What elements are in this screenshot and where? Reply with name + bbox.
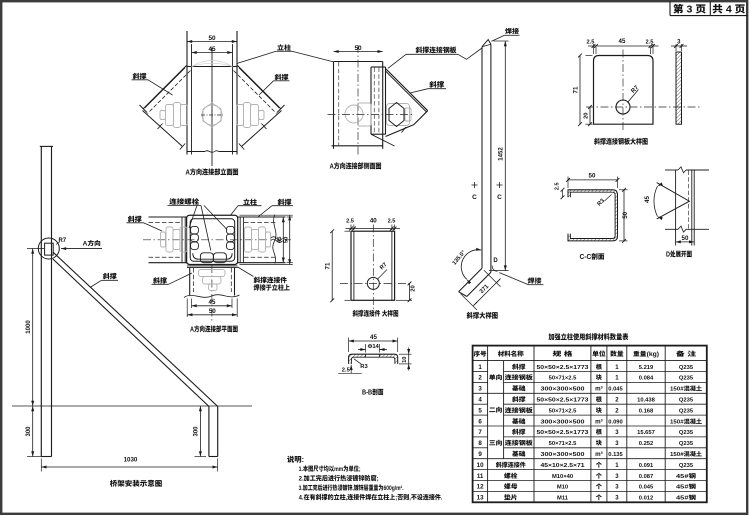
svg-text:50×71×2.5: 50×71×2.5: [549, 373, 578, 382]
svg-text:0.087: 0.087: [639, 471, 654, 480]
svg-text:0.045: 0.045: [639, 482, 654, 491]
svg-text:块: 块: [596, 438, 602, 447]
svg-text:斜撑连接件: 斜撑连接件: [496, 460, 527, 469]
svg-text:150#混凝土: 150#混凝土: [670, 416, 702, 425]
svg-text:斜撑大样图: 斜撑大样图: [467, 311, 499, 321]
svg-text:50: 50: [208, 33, 216, 42]
svg-text:6: 6: [478, 416, 482, 425]
svg-text:Q235: Q235: [679, 438, 694, 447]
svg-text:Q235: Q235: [679, 362, 694, 371]
svg-text:m³: m³: [595, 384, 603, 393]
svg-text:50×50×2.5×1773: 50×50×2.5×1773: [537, 363, 589, 371]
svg-text:9: 9: [478, 449, 482, 458]
svg-text:4.在有斜撑的立柱,连接件焊在立柱上;否则,不设连接件.: 4.在有斜撑的立柱,连接件焊在立柱上;否则,不设连接件.: [299, 491, 443, 501]
svg-text:C: C: [472, 191, 477, 201]
svg-text:单向: 单向: [489, 373, 503, 382]
svg-text:2.5: 2.5: [342, 364, 351, 373]
svg-text:D处展开图: D处展开图: [666, 249, 692, 259]
svg-text:71: 71: [570, 86, 579, 93]
svg-text:根: 根: [596, 362, 603, 371]
svg-text:10.438: 10.438: [637, 395, 656, 404]
svg-text:150#混凝土: 150#混凝土: [670, 449, 702, 458]
svg-text:10: 10: [477, 460, 484, 469]
svg-text:300×300×500: 300×300×500: [541, 416, 585, 425]
svg-text:40: 40: [370, 216, 377, 225]
svg-text:材料名称: 材料名称: [498, 349, 525, 358]
svg-text:0.091: 0.091: [639, 460, 654, 469]
svg-text:50: 50: [682, 233, 689, 242]
svg-text:重量(kg): 重量(kg): [633, 349, 659, 358]
svg-text:45#钢: 45#钢: [676, 493, 696, 502]
svg-text:斜撑连接钢板大样图: 斜撑连接钢板大样图: [594, 137, 648, 147]
svg-text:R7: R7: [58, 235, 66, 244]
svg-text:45: 45: [209, 297, 216, 306]
svg-text:A方向连接部侧面图: A方向连接部侧面图: [330, 161, 382, 171]
svg-text:13: 13: [477, 493, 484, 502]
svg-text:45#钢: 45#钢: [676, 482, 696, 491]
svg-text:螺母: 螺母: [504, 482, 518, 491]
svg-text:垫片: 垫片: [504, 493, 518, 502]
svg-text:C-C剖面: C-C剖面: [580, 252, 605, 262]
svg-text:加强立柱使用斜撑材料数量表: 加强立柱使用斜撑材料数量表: [548, 331, 628, 342]
svg-text:二向: 二向: [489, 405, 503, 414]
svg-text:螺栓: 螺栓: [504, 471, 518, 480]
svg-text:斜撑: 斜撑: [128, 213, 142, 223]
svg-text:斜撑: 斜撑: [512, 395, 526, 404]
svg-text:斜撑连接钢板: 斜撑连接钢板: [416, 45, 457, 55]
svg-text:焊接于立柱上: 焊接于立柱上: [254, 282, 291, 292]
svg-text:71: 71: [323, 262, 332, 269]
svg-text:0.135: 0.135: [608, 449, 623, 458]
svg-text:1452: 1452: [495, 147, 504, 161]
svg-text:3: 3: [478, 384, 482, 393]
svg-text:300: 300: [191, 426, 200, 437]
svg-text:D: D: [493, 255, 498, 264]
svg-text:2.5: 2.5: [553, 182, 561, 190]
svg-text:C: C: [497, 191, 502, 201]
svg-text:m³: m³: [595, 449, 603, 458]
svg-text:立柱: 立柱: [277, 42, 291, 52]
svg-text:A方向连接部立面图: A方向连接部立面图: [186, 168, 239, 178]
svg-text:300×300×500: 300×300×500: [541, 449, 585, 458]
svg-text:根: 根: [596, 395, 603, 404]
svg-text:基础: 基础: [512, 416, 526, 425]
svg-text:Q235: Q235: [679, 405, 694, 414]
svg-text:斜撑连接件 大样图: 斜撑连接件 大样图: [353, 309, 399, 319]
svg-text:2.5: 2.5: [388, 217, 396, 225]
svg-text:1: 1: [478, 362, 482, 371]
svg-text:斜撑: 斜撑: [512, 427, 526, 436]
svg-text:斜撑: 斜撑: [103, 271, 117, 281]
svg-text:规 格: 规 格: [553, 349, 574, 358]
svg-text:45×10×2.5×71: 45×10×2.5×71: [541, 460, 586, 469]
svg-text:基础: 基础: [512, 384, 526, 393]
svg-text:5: 5: [478, 405, 482, 414]
svg-text:块: 块: [596, 373, 602, 382]
svg-text:连接钢板: 连接钢板: [505, 373, 534, 382]
svg-text:A方向连接部平面图: A方向连接部平面图: [190, 324, 238, 334]
svg-text:块: 块: [596, 405, 602, 414]
svg-text:第 3 页: 第 3 页: [673, 1, 706, 16]
svg-text:50: 50: [620, 211, 629, 218]
svg-text:10: 10: [399, 356, 408, 362]
svg-text:20: 20: [407, 285, 416, 291]
svg-text:0.252: 0.252: [639, 438, 654, 447]
svg-text:45: 45: [208, 44, 216, 53]
svg-text:12: 12: [477, 482, 484, 491]
svg-text:个: 个: [596, 493, 603, 502]
svg-text:Φ14: Φ14: [368, 341, 380, 350]
svg-text:Q235: Q235: [679, 395, 694, 404]
svg-text:焊接: 焊接: [505, 26, 519, 36]
svg-text:50: 50: [589, 171, 596, 180]
svg-text:1000: 1000: [23, 320, 32, 334]
svg-text:20: 20: [581, 112, 590, 118]
svg-text:斜撑: 斜撑: [275, 71, 289, 81]
svg-text:备 注: 备 注: [676, 349, 697, 358]
svg-text:0.045: 0.045: [608, 384, 623, 393]
svg-text:桥架安装示意图: 桥架安装示意图: [110, 479, 163, 489]
svg-text:斜撑: 斜撑: [133, 70, 147, 80]
svg-text:45: 45: [370, 332, 377, 341]
svg-text:50: 50: [354, 43, 362, 52]
svg-text:5.219: 5.219: [639, 362, 654, 371]
svg-text:斜撑: 斜撑: [153, 275, 167, 285]
svg-text:三向: 三向: [489, 438, 503, 447]
svg-text:45: 45: [642, 196, 651, 203]
svg-text:R3: R3: [360, 361, 368, 370]
svg-text:连接螺栓: 连接螺栓: [169, 196, 199, 206]
svg-text:根: 根: [596, 427, 603, 436]
svg-text:0.168: 0.168: [639, 405, 654, 414]
svg-text:个: 个: [596, 482, 603, 491]
svg-text:单位: 单位: [592, 349, 606, 358]
svg-text:Q235: Q235: [679, 427, 694, 436]
svg-text:M10: M10: [557, 482, 568, 491]
svg-text:45#钢: 45#钢: [676, 471, 696, 480]
svg-text:0.084: 0.084: [639, 373, 654, 382]
svg-text:数量: 数量: [610, 349, 624, 358]
svg-text:序号: 序号: [474, 349, 487, 358]
svg-text:7: 7: [478, 427, 482, 436]
svg-text:45: 45: [619, 36, 626, 45]
svg-text:Q235: Q235: [679, 373, 694, 382]
svg-text:个: 个: [596, 460, 603, 469]
svg-text:2.5: 2.5: [646, 36, 654, 45]
svg-text:50×71×2.5: 50×71×2.5: [549, 405, 578, 414]
svg-text:Q235: Q235: [679, 460, 694, 469]
svg-text:0.090: 0.090: [608, 416, 623, 425]
svg-text:50×50×2.5×1773: 50×50×2.5×1773: [537, 396, 589, 404]
svg-text:连接钢板: 连接钢板: [505, 438, 534, 447]
svg-text:2.加工完后进行热浸镀锌防腐;: 2.加工完后进行热浸镀锌防腐;: [299, 472, 379, 482]
svg-text:M11: M11: [557, 493, 569, 502]
svg-text:焊接: 焊接: [528, 275, 542, 285]
svg-text:1030: 1030: [124, 455, 138, 464]
svg-text:A方向: A方向: [83, 239, 101, 248]
svg-text:300: 300: [23, 426, 32, 437]
svg-text:300×300×500: 300×300×500: [541, 384, 585, 393]
svg-text:4: 4: [478, 395, 482, 404]
svg-text:50×50×2.5×1773: 50×50×2.5×1773: [537, 428, 589, 436]
svg-text:2: 2: [478, 373, 482, 382]
svg-text:M10×40: M10×40: [552, 471, 573, 480]
svg-text:基础: 基础: [512, 449, 526, 458]
svg-text:15.657: 15.657: [637, 427, 655, 436]
svg-text:1.本图尺寸均以mm为单位;: 1.本图尺寸均以mm为单位;: [299, 463, 361, 473]
svg-text:斜撑: 斜撑: [278, 196, 292, 206]
svg-text:2.5: 2.5: [346, 217, 354, 225]
svg-text:立柱: 立柱: [243, 196, 257, 206]
svg-text:连接钢板: 连接钢板: [505, 405, 534, 414]
svg-text:B-B剖面: B-B剖面: [362, 387, 384, 397]
svg-text:11: 11: [477, 471, 484, 480]
svg-text:50×71×2.5: 50×71×2.5: [549, 438, 578, 447]
svg-text:8: 8: [478, 438, 482, 447]
svg-text:共 4 页: 共 4 页: [712, 1, 745, 16]
svg-text:2.5: 2.5: [587, 36, 595, 45]
svg-text:50: 50: [209, 306, 216, 315]
svg-text:150#混凝土: 150#混凝土: [670, 384, 702, 393]
svg-text:斜撑: 斜撑: [512, 362, 526, 371]
svg-text:个: 个: [596, 471, 603, 480]
svg-text:0.012: 0.012: [639, 493, 654, 502]
svg-text:m³: m³: [595, 416, 603, 425]
